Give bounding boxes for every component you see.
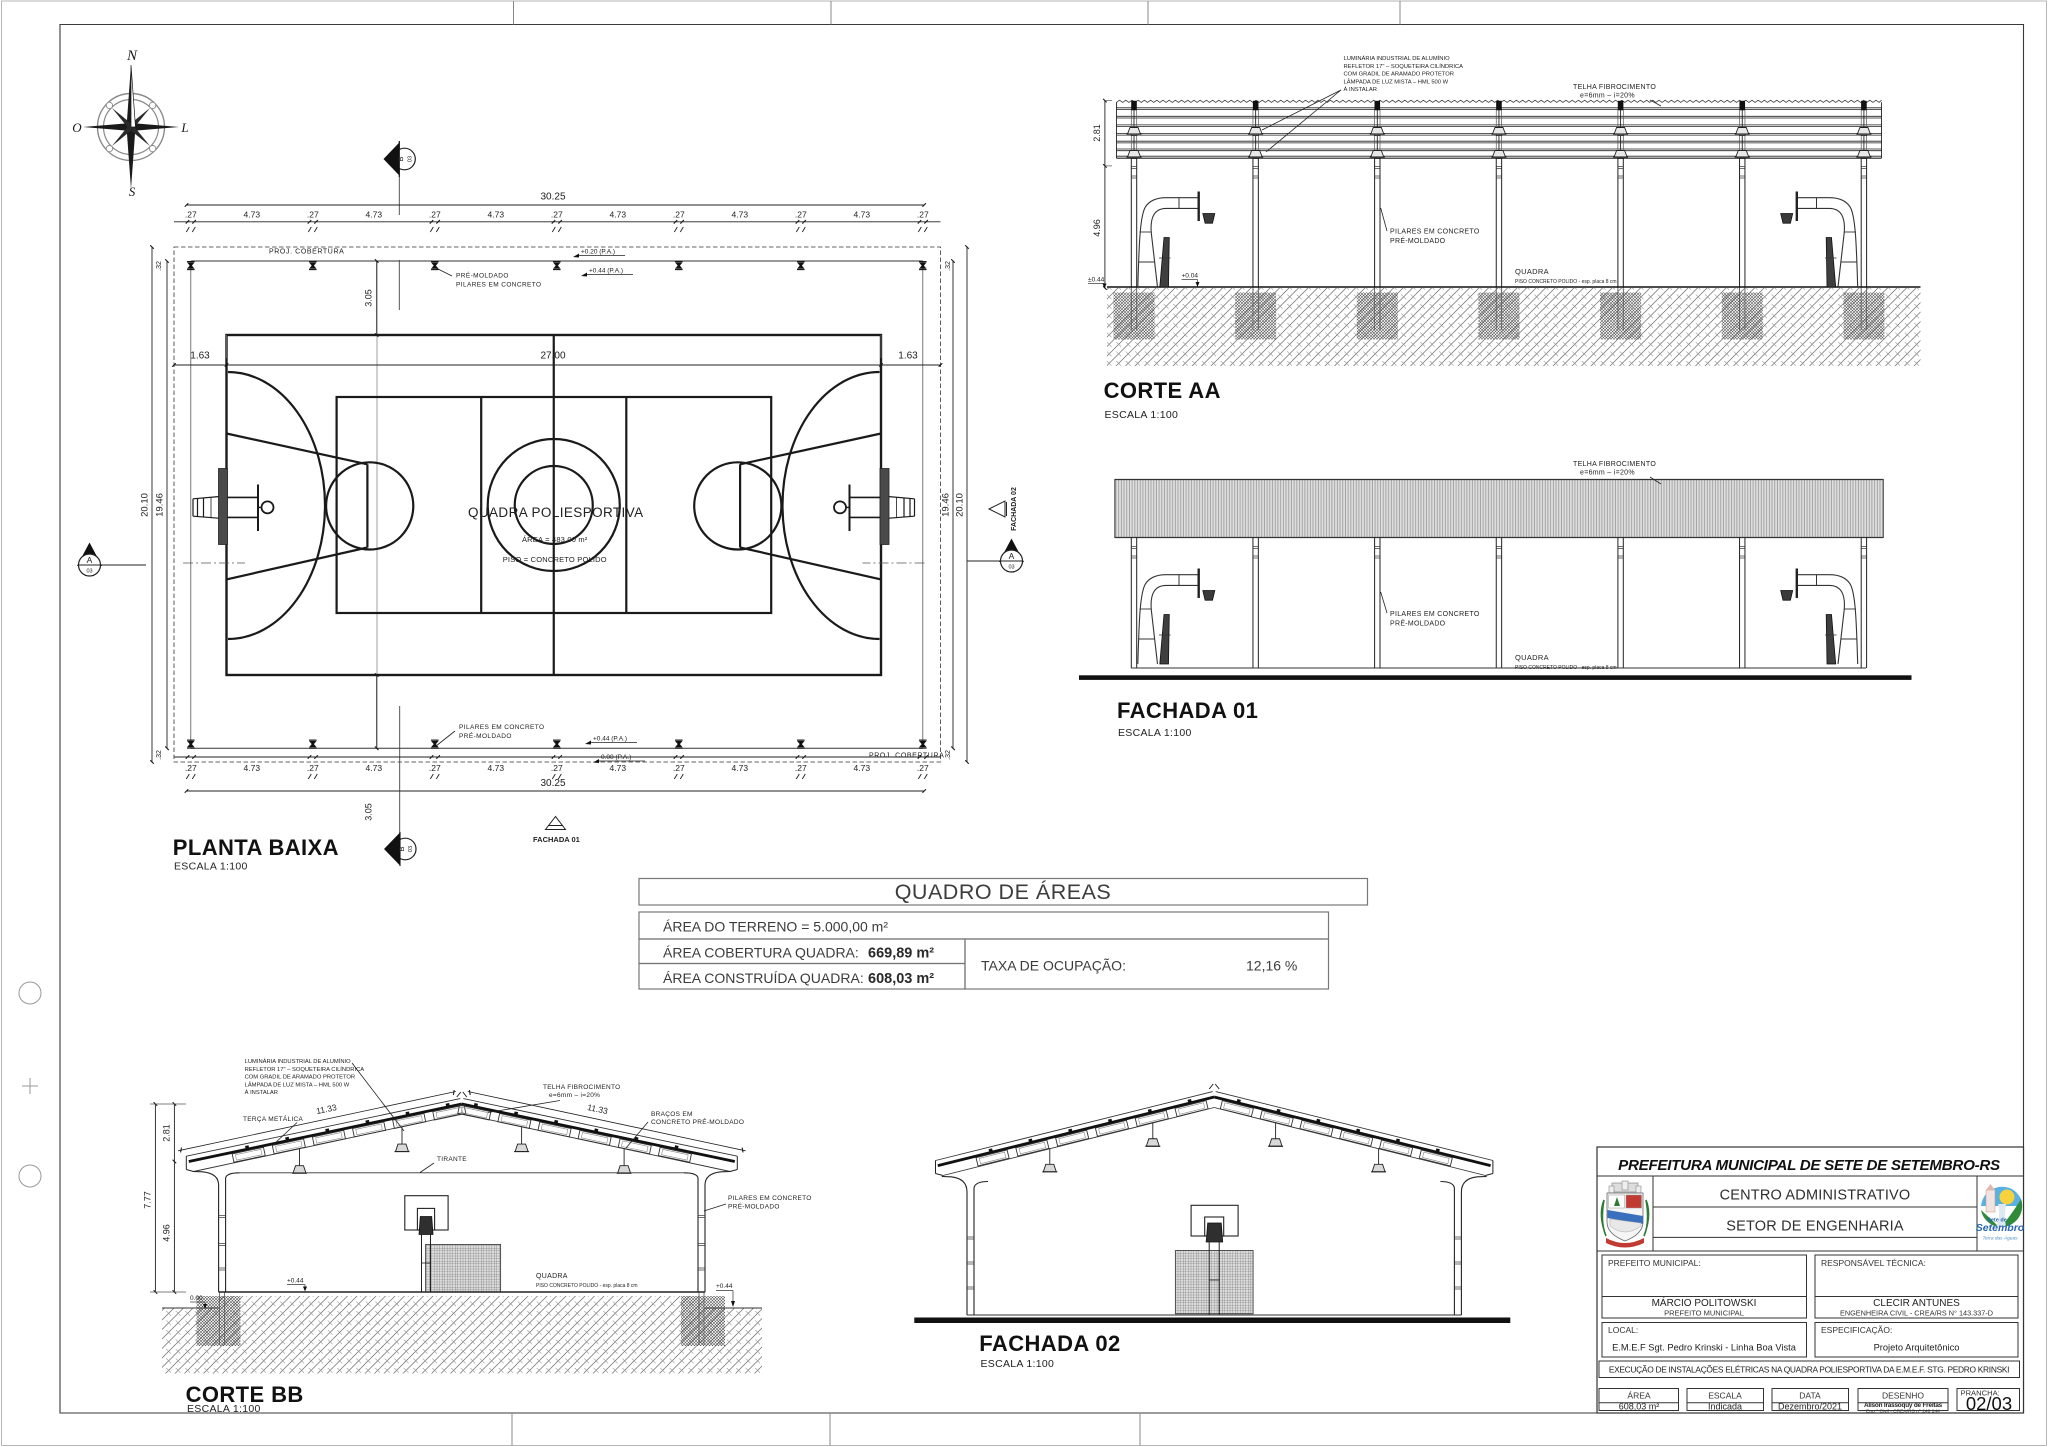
svg-text:PRÉ-MOLDADO: PRÉ-MOLDADO [1390,236,1446,245]
svg-text:30.25: 30.25 [540,192,565,203]
svg-text:03: 03 [408,156,414,162]
svg-text:608,03 m²: 608,03 m² [1619,1402,1660,1412]
svg-text:PISO = CONCRETO POLIDO: PISO = CONCRETO POLIDO [503,555,607,564]
svg-text:ESPECIFICAÇÃO:: ESPECIFICAÇÃO: [1821,1325,1892,1335]
svg-text:PREFEITO MUNICIPAL: PREFEITO MUNICIPAL [1664,1309,1744,1318]
svg-text:PILARES EM CONCRETO: PILARES EM CONCRETO [1390,229,1480,236]
svg-text:B: B [396,156,405,161]
svg-text:REFLETOR 17" – SOQUETEIRA CILÍ: REFLETOR 17" – SOQUETEIRA CILÍNDRICA [245,1066,365,1073]
svg-text:30.25: 30.25 [540,778,565,789]
svg-text:LÂMPADA DE LUZ MISTA – HML 500: LÂMPADA DE LUZ MISTA – HML 500 W [1344,78,1449,85]
svg-text:.27: .27 [429,210,441,220]
svg-text:FACHADA 02: FACHADA 02 [979,1331,1120,1356]
svg-text:Sete de: Sete de [1987,1218,2007,1224]
svg-text:12,16 %: 12,16 % [1246,958,1297,974]
svg-text:PILARES EM CONCRETO: PILARES EM CONCRETO [1390,611,1480,618]
svg-text:PREFEITURA MUNICIPAL DE SETE D: PREFEITURA MUNICIPAL DE SETE DE SETEMBRO… [1618,1157,2000,1174]
svg-text:PROJ. COBERTURA: PROJ. COBERTURA [269,249,344,256]
svg-text:TELHA FIBROCIMENTO: TELHA FIBROCIMENTO [1573,461,1656,468]
svg-text:PRÉ-MOLDADO: PRÉ-MOLDADO [1390,619,1446,628]
svg-text:QUADRA POLIESPORTIVA: QUADRA POLIESPORTIVA [468,505,644,520]
svg-text:PRÉ-MOLDADO: PRÉ-MOLDADO [728,1202,780,1211]
svg-text:ESCALA: ESCALA [1708,1391,1742,1401]
svg-text:Alison Irassoquy de Freitas: Alison Irassoquy de Freitas [1864,1402,1943,1409]
svg-text:03: 03 [1008,565,1014,571]
svg-text:SETOR DE ENGENHARIA: SETOR DE ENGENHARIA [1726,1219,1904,1235]
svg-text:PISO CONCRETO POLIDO - esp. pl: PISO CONCRETO POLIDO - esp. placa 8 cm [1515,279,1617,285]
svg-text:CORTE AA: CORTE AA [1104,378,1221,403]
svg-text:4.96: 4.96 [1092,219,1102,237]
svg-text:4.73: 4.73 [610,763,627,773]
svg-text:PLANTA BAIXA: PLANTA BAIXA [173,835,339,860]
svg-text:ESCALA 1:100: ESCALA 1:100 [1105,409,1179,421]
svg-text:7.77: 7.77 [143,1191,153,1209]
svg-text:2.81: 2.81 [1092,124,1102,142]
svg-text:S: S [129,184,136,199]
svg-text:COM GRADIL DE ARAMADO PROTETOR: COM GRADIL DE ARAMADO PROTETOR [245,1075,355,1081]
svg-text:4.73: 4.73 [244,210,261,220]
svg-text:.32: .32 [156,261,163,271]
svg-text:CLECIR ANTUNES: CLECIR ANTUNES [1873,1298,1960,1309]
svg-text:QUADRA: QUADRA [1515,267,1549,276]
svg-text:CENTRO ADMINISTRATIVO: CENTRO ADMINISTRATIVO [1720,1188,1911,1204]
svg-text:BRAÇOS EM: BRAÇOS EM [651,1111,693,1118]
svg-text:QUADRA: QUADRA [1515,653,1549,662]
svg-text:4.73: 4.73 [610,210,627,220]
svg-text:20.10: 20.10 [955,493,966,517]
svg-text:FACHADA 02: FACHADA 02 [1011,487,1018,531]
svg-text:4.73: 4.73 [366,763,383,773]
svg-text:.27: .27 [795,210,807,220]
svg-text:B: B [397,846,406,851]
svg-text:20.10: 20.10 [140,493,151,517]
svg-text:4.73: 4.73 [488,210,505,220]
svg-text:.27: .27 [551,763,563,773]
svg-text:PRÉ-MOLDADO: PRÉ-MOLDADO [456,271,509,280]
svg-text:.27: .27 [917,210,929,220]
svg-text:.27: .27 [795,763,807,773]
svg-text:ÁREA DO TERRENO = 5.000,00 m²: ÁREA DO TERRENO = 5.000,00 m² [663,919,888,935]
svg-text:ÁREA = 483,00 m²: ÁREA = 483,00 m² [522,535,588,544]
svg-text:TELHA FIBROCIMENTO: TELHA FIBROCIMENTO [1573,84,1656,91]
svg-text:Dezembro/2021: Dezembro/2021 [1778,1402,1842,1412]
svg-text:03: 03 [408,846,414,852]
svg-text:1.63: 1.63 [898,351,918,362]
svg-text:EXECUÇÃO DE INSTALAÇÕES ELÉTRI: EXECUÇÃO DE INSTALAÇÕES ELÉTRICAS NA QUA… [1609,1365,2009,1375]
svg-text:4.73: 4.73 [854,763,871,773]
svg-text:À INSTALAR: À INSTALAR [245,1089,278,1096]
svg-text:L: L [180,120,188,135]
svg-text:±0.44: ±0.44 [1088,277,1105,284]
svg-text:+0.44 (P.A.): +0.44 (P.A.) [593,736,627,743]
svg-text:ÁREA COBERTURA QUADRA:: ÁREA COBERTURA QUADRA: [663,945,859,961]
svg-text:Eng ° Civil - CREA/RS n° 248 2: Eng ° Civil - CREA/RS n° 248 244 [1866,1408,1940,1414]
svg-text:0.00 (P.A.): 0.00 (P.A.) [601,754,631,761]
svg-text:3.05: 3.05 [364,803,374,821]
svg-text:4.73: 4.73 [732,763,749,773]
svg-text:.27: .27 [307,763,319,773]
svg-text:4.73: 4.73 [488,763,505,773]
svg-text:DATA: DATA [1799,1391,1821,1401]
svg-text:TIRANTE: TIRANTE [437,1156,467,1163]
svg-text:REFLETOR 17" – SOQUETEIRA CILÍ: REFLETOR 17" – SOQUETEIRA CILÍNDRICA [1344,63,1464,70]
svg-text:.27: .27 [551,210,563,220]
svg-text:O: O [72,120,82,135]
svg-text:LUMINÁRIA INDUSTRIAL DE ALUMÍN: LUMINÁRIA INDUSTRIAL DE ALUMÍNIO [245,1058,352,1065]
svg-text:+0.44: +0.44 [716,1283,733,1290]
svg-text:MÁRCIO POLITOWSKI: MÁRCIO POLITOWSKI [1652,1296,1757,1309]
svg-text:Indicada: Indicada [1708,1402,1742,1412]
svg-text:COM GRADIL DE ARAMADO PROTETOR: COM GRADIL DE ARAMADO PROTETOR [1344,72,1454,78]
svg-text:QUADRO DE ÁREAS: QUADRO DE ÁREAS [895,879,1112,904]
svg-text:4.73: 4.73 [366,210,383,220]
svg-text:ESCALA 1:100: ESCALA 1:100 [1118,727,1192,739]
svg-text:PILARES EM CONCRETO: PILARES EM CONCRETO [728,1195,812,1202]
svg-text:À INSTALAR: À INSTALAR [1344,86,1377,93]
svg-text:0.00: 0.00 [190,1295,203,1302]
svg-text:3.05: 3.05 [364,289,374,307]
svg-text:FACHADA 01: FACHADA 01 [1117,698,1258,723]
svg-text:ENGENHEIRA CIVIL - CREA/RS N°: ENGENHEIRA CIVIL - CREA/RS N° 143.337-D [1840,1309,1993,1318]
svg-text:ESCALA 1:100: ESCALA 1:100 [981,1358,1055,1370]
svg-text:LOCAL:: LOCAL: [1608,1325,1638,1335]
svg-text:ÁREA CONSTRUÍDA QUADRA:: ÁREA CONSTRUÍDA QUADRA: [663,970,864,986]
svg-text:DESENHO: DESENHO [1882,1391,1924,1401]
svg-text:LÂMPADA DE LUZ MISTA – HML 500: LÂMPADA DE LUZ MISTA – HML 500 W [245,1081,350,1088]
svg-text:.32: .32 [945,750,952,760]
svg-text:4.73: 4.73 [732,210,749,220]
svg-text:4.96: 4.96 [162,1224,172,1242]
svg-text:608,03 m²: 608,03 m² [868,971,934,987]
svg-text:PISO CONCRETO POLIDO - esp. pl: PISO CONCRETO POLIDO - esp. placa 8 cm [1515,665,1617,671]
svg-text:Projeto Arquitetônico: Projeto Arquitetônico [1874,1343,1960,1353]
svg-text:Setembro: Setembro [1976,1222,2025,1234]
svg-text:.32: .32 [945,261,952,271]
svg-text:02/03: 02/03 [1966,1393,2012,1414]
svg-text:PROJ. COBERTURA: PROJ. COBERTURA [869,753,944,760]
svg-text:ESCALA 1:100: ESCALA 1:100 [187,1403,261,1415]
svg-text:19.46: 19.46 [941,493,952,517]
svg-text:+0.04: +0.04 [1182,273,1199,280]
svg-text:+0.20 (P.A.): +0.20 (P.A.) [581,249,615,256]
svg-text:.27: .27 [307,210,319,220]
svg-text:N: N [126,48,138,64]
svg-text:.27: .27 [917,763,929,773]
svg-text:PREFEITO MUNICIPAL:: PREFEITO MUNICIPAL: [1608,1258,1701,1268]
svg-text:.27: .27 [185,763,197,773]
svg-text:+0.44: +0.44 [287,1278,304,1285]
svg-text:RESPONSÁVEL TÉCNICA:: RESPONSÁVEL TÉCNICA: [1821,1258,1926,1268]
svg-text:QUADRA: QUADRA [536,1273,568,1280]
svg-text:2.81: 2.81 [162,1124,172,1142]
svg-text:4.73: 4.73 [244,763,261,773]
svg-text:+0.44 (P.A.): +0.44 (P.A.) [589,268,623,275]
svg-text:CONCRETO PRÉ-MOLDADO: CONCRETO PRÉ-MOLDADO [651,1117,744,1126]
svg-text:TAXA DE OCUPAÇÃO:: TAXA DE OCUPAÇÃO: [981,958,1126,974]
svg-text:LUMINÁRIA INDUSTRIAL DE ALUMÍN: LUMINÁRIA INDUSTRIAL DE ALUMÍNIO [1344,55,1451,62]
svg-text:E.M.E.F Sgt. Pedro Krinski - L: E.M.E.F Sgt. Pedro Krinski - Linha Boa V… [1612,1343,1797,1353]
svg-text:PISO CONCRETO POLIDO - esp. pl: PISO CONCRETO POLIDO - esp. placa 8 cm [536,1283,638,1289]
svg-text:.27: .27 [185,210,197,220]
svg-text:.32: .32 [156,750,163,760]
svg-text:A: A [1009,551,1015,561]
svg-text:PILARES EM CONCRETO: PILARES EM CONCRETO [459,724,545,731]
svg-text:Terra das Águas: Terra das Águas [1982,1235,2018,1242]
svg-text:TERÇA METÁLICA: TERÇA METÁLICA [243,1114,304,1123]
svg-text:ESCALA 1:100: ESCALA 1:100 [174,861,248,873]
svg-text:.27: .27 [429,763,441,773]
svg-text:e=6mm – i=20%: e=6mm – i=20% [549,1092,600,1099]
svg-text:e=6mm – i=20%: e=6mm – i=20% [1580,470,1635,477]
svg-text:27.00: 27.00 [540,351,565,362]
svg-text:PRÉ-MOLDADO: PRÉ-MOLDADO [459,731,512,740]
svg-text:.27: .27 [673,210,685,220]
svg-text:669,89 m²: 669,89 m² [868,946,934,962]
svg-text:TELHA FIBROCIMENTO: TELHA FIBROCIMENTO [543,1084,621,1091]
svg-text:4.73: 4.73 [854,210,871,220]
svg-text:PILARES EM CONCRETO: PILARES EM CONCRETO [456,282,542,289]
svg-text:e=6mm – i=20%: e=6mm – i=20% [1580,93,1635,100]
svg-text:03: 03 [86,569,92,575]
svg-text:.27: .27 [673,763,685,773]
svg-text:FACHADA 01: FACHADA 01 [533,835,580,844]
svg-text:1.63: 1.63 [190,351,210,362]
svg-text:A: A [87,555,93,565]
svg-text:19.46: 19.46 [155,493,166,517]
svg-text:ÁREA: ÁREA [1627,1391,1650,1401]
